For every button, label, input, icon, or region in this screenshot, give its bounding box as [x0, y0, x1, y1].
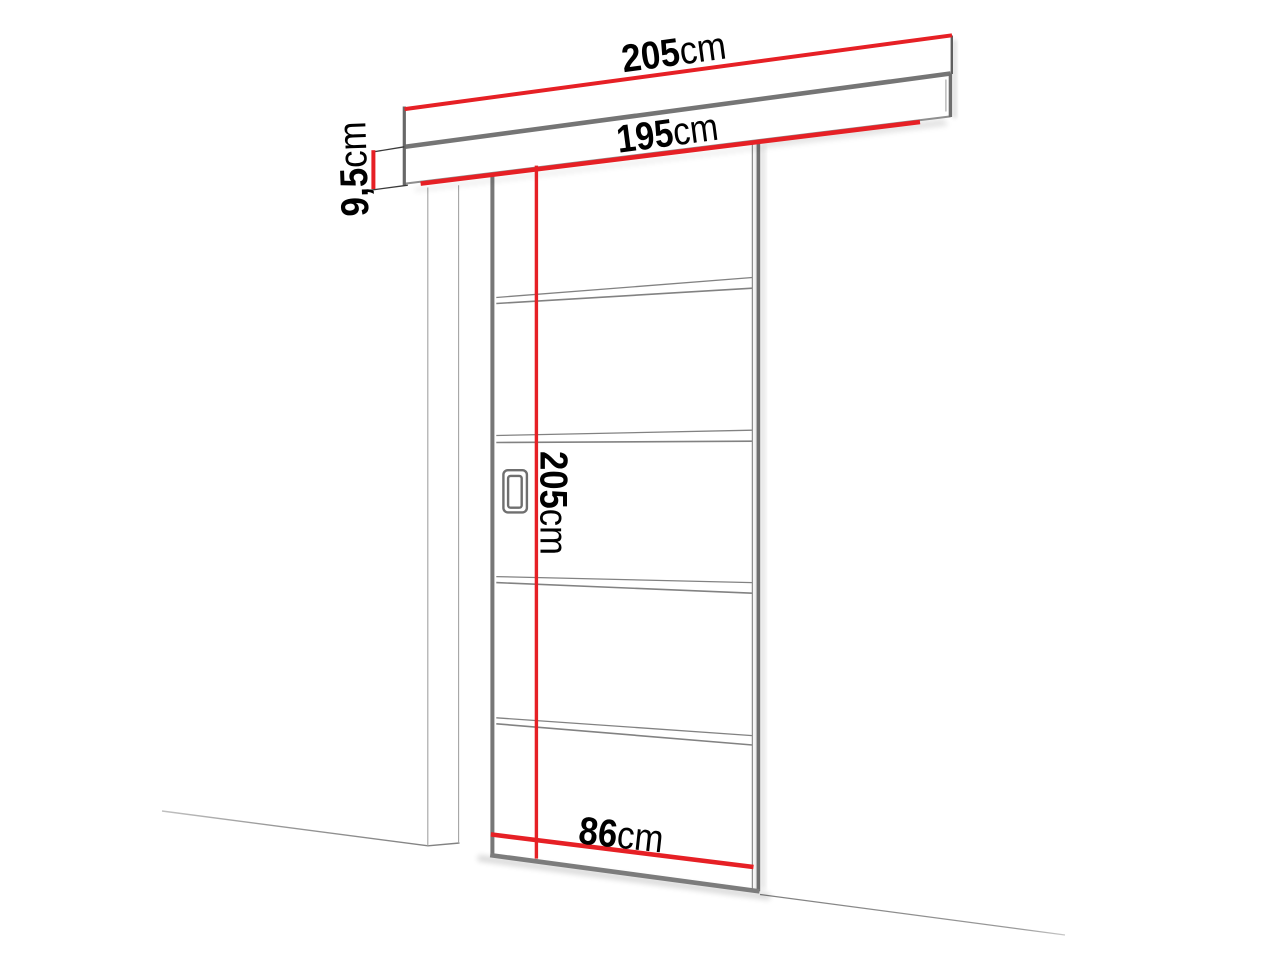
svg-text:9,5cm: 9,5cm — [331, 121, 377, 217]
svg-text:205cm: 205cm — [531, 451, 574, 555]
